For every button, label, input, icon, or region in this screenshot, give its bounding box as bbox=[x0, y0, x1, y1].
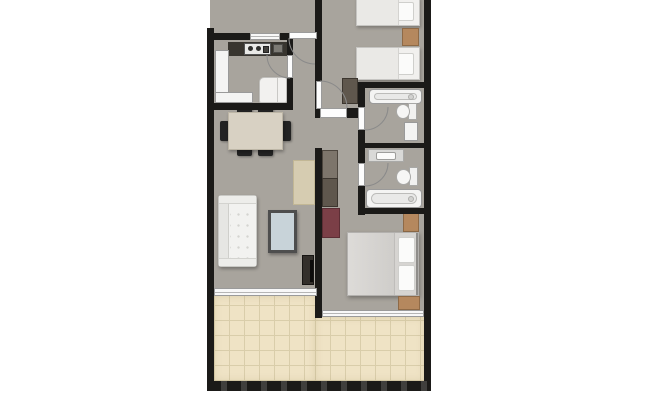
terrace-tiles-left bbox=[214, 296, 315, 381]
terrace-tiles-right bbox=[315, 317, 424, 381]
entrance-door bbox=[289, 32, 317, 39]
console-sideboard bbox=[293, 160, 315, 205]
duvet-edge bbox=[357, 48, 399, 79]
sofa-cushions bbox=[230, 205, 255, 258]
duvet-fold bbox=[348, 233, 395, 295]
burner-icon bbox=[248, 46, 253, 51]
dining-table bbox=[228, 112, 283, 150]
bedroom-1-door-leaf bbox=[316, 81, 322, 109]
wardrobe-corridor-upper bbox=[322, 150, 338, 179]
bathroom-1-door bbox=[358, 107, 365, 130]
tv-screen-icon bbox=[310, 260, 313, 282]
bathtub-drain-icon bbox=[408, 94, 414, 100]
pillow bbox=[398, 237, 415, 263]
stove-icon bbox=[244, 43, 271, 55]
toilet-2-bowl bbox=[396, 169, 411, 185]
bathroom-2-door bbox=[358, 163, 365, 186]
fridge-door-seam bbox=[277, 78, 278, 102]
pillow bbox=[397, 53, 414, 75]
living-room-terrace-window bbox=[214, 288, 317, 296]
nightstand-bottom bbox=[398, 296, 420, 310]
headboard bbox=[416, 233, 418, 295]
sofa-backrest bbox=[219, 196, 229, 266]
bedroom-1-door-opening bbox=[320, 108, 347, 118]
sink-icon bbox=[376, 152, 396, 160]
nightstand-top bbox=[403, 213, 419, 232]
wall-bottom-terrace bbox=[207, 381, 431, 391]
vanity-2 bbox=[368, 149, 404, 162]
kitchen-counter-bottom bbox=[215, 92, 253, 103]
apartment-floorplan bbox=[207, 0, 431, 391]
single-bed-1 bbox=[356, 0, 420, 26]
duvet-edge bbox=[357, 0, 399, 25]
tv-unit bbox=[302, 255, 314, 285]
sofa-armrest bbox=[219, 196, 256, 204]
pillow bbox=[398, 265, 415, 291]
wall-bathrooms-divider bbox=[358, 143, 424, 148]
dining-chair bbox=[282, 121, 291, 141]
toilet-1-bowl bbox=[396, 104, 410, 119]
coffee-table bbox=[268, 210, 297, 253]
floorplan-page bbox=[0, 0, 650, 420]
kitchen-counter-left bbox=[215, 50, 229, 97]
kitchen-door bbox=[287, 55, 293, 78]
bath-cabinet-1 bbox=[404, 122, 418, 141]
kitchen-window bbox=[250, 33, 280, 40]
wall-left bbox=[207, 28, 214, 391]
wall-bathrooms-left bbox=[358, 82, 365, 215]
bedroom-2-terrace-window bbox=[322, 310, 424, 317]
bathtub-2 bbox=[366, 189, 422, 208]
oven-door-icon bbox=[263, 46, 269, 53]
wardrobe-bedroom-1 bbox=[342, 78, 358, 104]
wardrobe-corridor-lower bbox=[322, 178, 338, 207]
dresser-maroon bbox=[322, 208, 340, 238]
nightstand-bedroom-1 bbox=[402, 28, 419, 46]
wall-kitchen-bottom bbox=[207, 103, 293, 110]
double-bed bbox=[347, 232, 419, 296]
sofa bbox=[218, 195, 257, 267]
single-bed-2 bbox=[356, 47, 420, 80]
wall-right bbox=[424, 0, 431, 391]
wall-bathroom2-bottom bbox=[358, 208, 424, 214]
kitchen-sink-icon bbox=[273, 44, 283, 53]
wall-bathroom1-top bbox=[358, 82, 424, 88]
pillow bbox=[397, 2, 414, 21]
sofa-armrest bbox=[219, 258, 256, 266]
bathtub-drain-icon bbox=[408, 196, 414, 202]
burner-icon bbox=[256, 46, 261, 51]
fridge bbox=[259, 77, 287, 103]
bathtub-1 bbox=[369, 89, 422, 104]
